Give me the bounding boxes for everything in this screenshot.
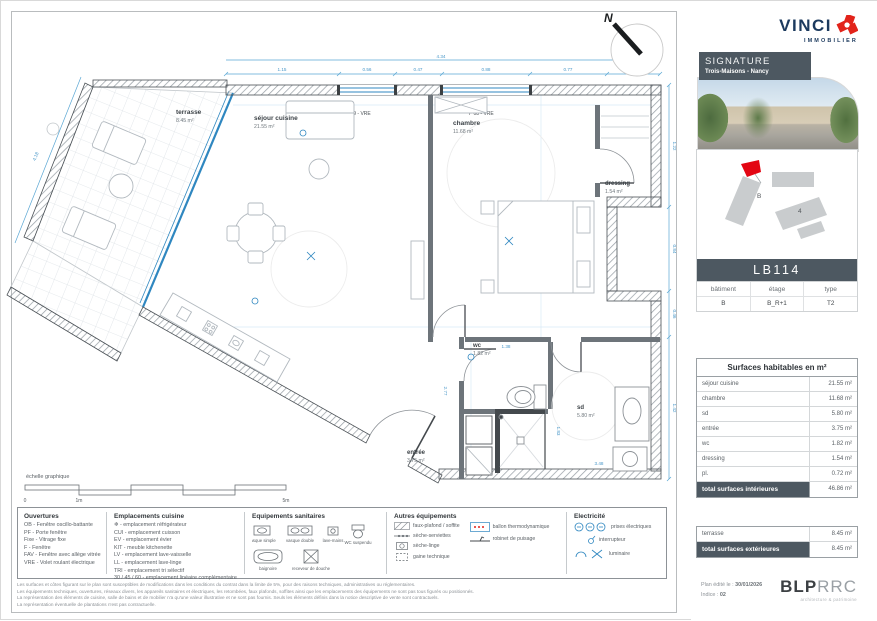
robinet-puisage-icon [470, 535, 490, 543]
lave-mains-icon [328, 527, 338, 535]
total-interior-row: total surfaces intérieures46.86 m² [697, 482, 857, 497]
svg-text:échelle graphique: échelle graphique [26, 474, 69, 480]
dining-table [235, 212, 277, 254]
svg-text:1.22: 1.22 [672, 142, 677, 151]
svg-text:1.83: 1.83 [556, 427, 561, 436]
prises-icon [574, 522, 608, 532]
table-row: chambre11.68 m² [697, 392, 857, 407]
room-label: séjour cuisine [254, 115, 298, 122]
site-plan-mini: B 4 [697, 150, 855, 254]
room-label: sd [577, 405, 584, 411]
shower-head [499, 415, 503, 419]
north-label: N [604, 11, 613, 25]
program-location: Trois-Maisons - Nancy [705, 69, 805, 75]
room-label: entrée [407, 450, 426, 456]
seche-linge-icon [394, 542, 410, 550]
interior-surfaces-table: Surfaces habitables en m² séjour cuisine… [696, 358, 858, 498]
legend: Ouvertures OB - Fenêtre oscillo-battante… [17, 507, 667, 579]
svg-text:3.48: 3.48 [595, 461, 604, 466]
wc-tank [534, 385, 546, 409]
luminaire-icon [574, 548, 606, 560]
vinci-logo-mark [836, 15, 858, 37]
table-row: entrée3.75 m² [697, 422, 857, 437]
architect-logo: BLPRRC architecture & patrimoine [780, 577, 857, 602]
exterior-surfaces-table: terrasse8.45 m² total surfaces extérieur… [696, 526, 858, 558]
legend-electricite: Electricité prises électriques interrupt… [574, 513, 662, 563]
table-row: dressing1.54 m² [697, 452, 857, 467]
sanitaires-icons: vasque simple vasque double lave-mains W… [252, 522, 380, 574]
room-label: terrasse [176, 109, 202, 116]
room-area: 11.68 m² [453, 129, 473, 135]
table-row: terrasse8.45 m² [697, 527, 857, 542]
svg-text:4.34: 4.34 [437, 54, 446, 59]
vasque-simple-icon [254, 526, 270, 535]
room-area: 3.75 m² [407, 458, 425, 464]
room-area: 5.80 m² [577, 413, 595, 419]
svg-text:receveur de douche: receveur de douche [292, 566, 331, 571]
interrupteur-icon [586, 535, 596, 545]
unit-code: LB114 [697, 259, 857, 281]
room-area: 1.82 m² [473, 351, 491, 357]
svg-text:4.18: 4.18 [32, 151, 40, 162]
svg-text:0.88: 0.88 [482, 67, 491, 72]
svg-text:1.38: 1.38 [502, 344, 511, 349]
dressing-shelves [601, 116, 649, 138]
shower-drain [517, 437, 524, 444]
svg-text:vasque double: vasque double [286, 538, 315, 543]
plan-sheet: F 09 - VRE F 08 - VRE [0, 0, 877, 620]
coffee-table [309, 159, 329, 179]
svg-text:2.77: 2.77 [443, 387, 448, 396]
room-label: wc [472, 343, 482, 349]
wc-suspendu-icon [352, 525, 364, 530]
table-row: séjour cuisine21.55 m² [697, 377, 857, 392]
svg-text:lave-mains: lave-mains [323, 538, 344, 543]
svg-text:baignoire: baignoire [259, 566, 277, 571]
architect-tagline: architecture & patrimoine [780, 597, 857, 602]
closet-pl [466, 416, 492, 444]
disclaimer-text: Les surfaces et côtes figurant sur le pl… [17, 582, 667, 608]
highlighted-unit [741, 160, 761, 177]
surfaces-title: Surfaces habitables en m² [697, 359, 857, 377]
hatch-swatch-icon [394, 522, 410, 530]
svg-text:vasque simple: vasque simple [252, 538, 276, 543]
svg-text:5m: 5m [283, 498, 290, 504]
info-sidebar: VINCI IMMOBILIER SIGNATURE Trois-Maisons… [691, 1, 877, 621]
electrical-symbols [252, 130, 513, 360]
plan-footer: Plan édité le : 30/01/2026 Indice : 02 B… [701, 582, 871, 602]
north-compass: N [604, 11, 663, 76]
floor-plan-drawing: F 09 - VRE F 08 - VRE [1, 1, 691, 506]
ballon-thermo-icon [470, 522, 490, 532]
room-area: 1.54 m² [605, 189, 623, 195]
room-area: 8.45 m² [176, 118, 194, 124]
svg-text:0.47: 0.47 [414, 67, 423, 72]
vinci-logo: VINCI IMMOBILIER [779, 15, 858, 44]
svg-text:1.42: 1.42 [672, 404, 677, 413]
unit-info-table: bâtiment B étage B_R+1 type T2 [697, 281, 857, 311]
svg-text:1.15: 1.15 [278, 67, 287, 72]
svg-text:0: 0 [24, 498, 27, 504]
terrace-table [109, 174, 133, 198]
svg-text:0.46: 0.46 [672, 310, 677, 319]
graphic-scale: échelle graphique 0 1m 5m [24, 474, 290, 504]
building-label-2: 4 [798, 208, 802, 215]
building-label: B [757, 193, 761, 200]
svg-text:0.77: 0.77 [564, 67, 573, 72]
unit-card: B 4 LB114 bâtiment B étage B_R+1 type T2 [696, 149, 858, 312]
program-photo [697, 77, 859, 152]
room-label: chambre [453, 120, 480, 127]
seche-serviettes-icon [394, 533, 410, 539]
vinci-division: IMMOBILIER [779, 38, 858, 44]
legend-sanitaires: Equipements sanitaires vasque simple vas… [252, 513, 380, 579]
room-area: 21.55 m² [254, 124, 275, 130]
room-label: dressing [605, 181, 630, 187]
tv-unit [411, 241, 424, 299]
table-row: sd5.80 m² [697, 407, 857, 422]
gaine-technique-icon [394, 553, 410, 561]
plant [47, 123, 59, 135]
legend-autres: Autres équipements faux-plafond / soffit… [394, 513, 560, 564]
svg-text:WC suspendu: WC suspendu [345, 540, 373, 545]
svg-text:1m: 1m [76, 498, 83, 504]
program-banner: SIGNATURE Trois-Maisons - Nancy [699, 52, 811, 80]
total-exterior-row: total surfaces extérieures8.45 m² [697, 542, 857, 557]
program-name: SIGNATURE [705, 56, 805, 67]
vinci-wordmark: VINCI [779, 16, 832, 36]
legend-cuisine: Emplacements cuisine ❄ - emplacement réf… [114, 513, 240, 583]
svg-text:0.56: 0.56 [363, 67, 372, 72]
svg-text:0.84: 0.84 [672, 245, 677, 254]
vasque-double-icon [288, 526, 312, 535]
table-row: wc1.82 m² [697, 437, 857, 452]
table-row: pl.0.72 m² [697, 467, 857, 482]
legend-ouvertures: Ouvertures OB - Fenêtre oscillo-battante… [24, 513, 104, 568]
